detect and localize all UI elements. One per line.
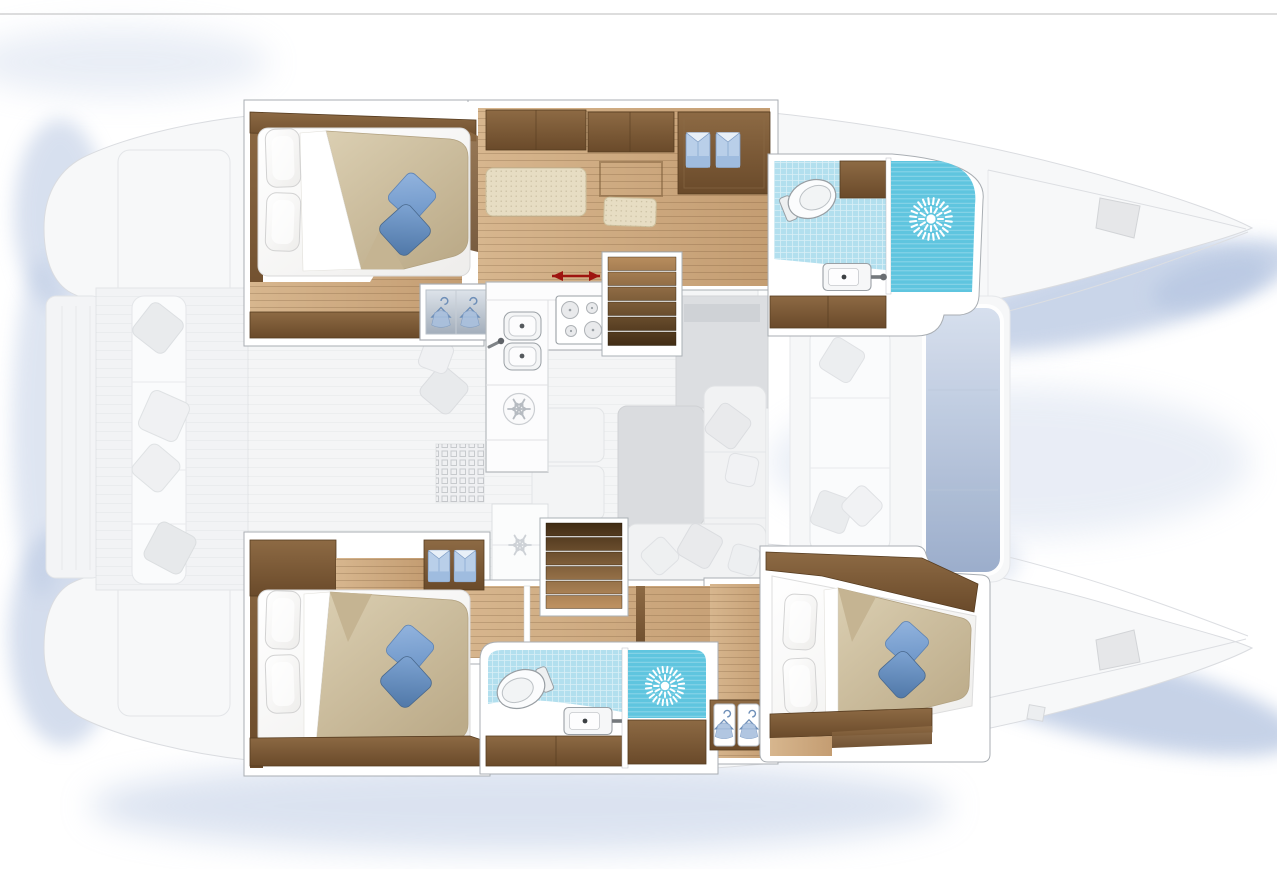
catamaran-layout-plan <box>0 0 1277 869</box>
bed-pillow <box>265 128 301 187</box>
bed-pillow <box>782 594 817 651</box>
page-top-divider <box>0 13 1277 15</box>
aft-crossbeam <box>46 296 102 578</box>
forward-cockpit-cushion <box>924 306 1002 574</box>
folded-shirts-icon <box>716 133 740 168</box>
folded-shirts-icon <box>686 133 710 168</box>
cabin-head-wood <box>250 540 336 596</box>
cabin-floor-strip <box>770 736 832 756</box>
starboard-companionway-stairs <box>540 518 628 616</box>
storage-cabinet <box>588 112 674 152</box>
deck-fitting <box>1027 705 1045 722</box>
bed-pillow <box>265 192 301 251</box>
bed-pillow <box>265 590 301 649</box>
sheet-fold <box>824 588 838 730</box>
saloon-table <box>618 406 704 526</box>
bed-pillow <box>265 654 301 713</box>
folded-shirts-icon <box>428 550 450 582</box>
port-companionway-stairs <box>602 252 682 356</box>
shower-partition <box>622 648 628 768</box>
bathroom-shelf-wood <box>840 161 886 198</box>
saloon-pillow <box>724 452 760 488</box>
bathroom-cabinet-wood <box>486 736 622 766</box>
cabin-foot-wood <box>250 736 488 766</box>
folded-shirts-icon <box>454 550 476 582</box>
bed-pillow <box>782 658 817 715</box>
shower-cabinet-wood <box>628 720 706 764</box>
shower-partition <box>886 158 891 294</box>
